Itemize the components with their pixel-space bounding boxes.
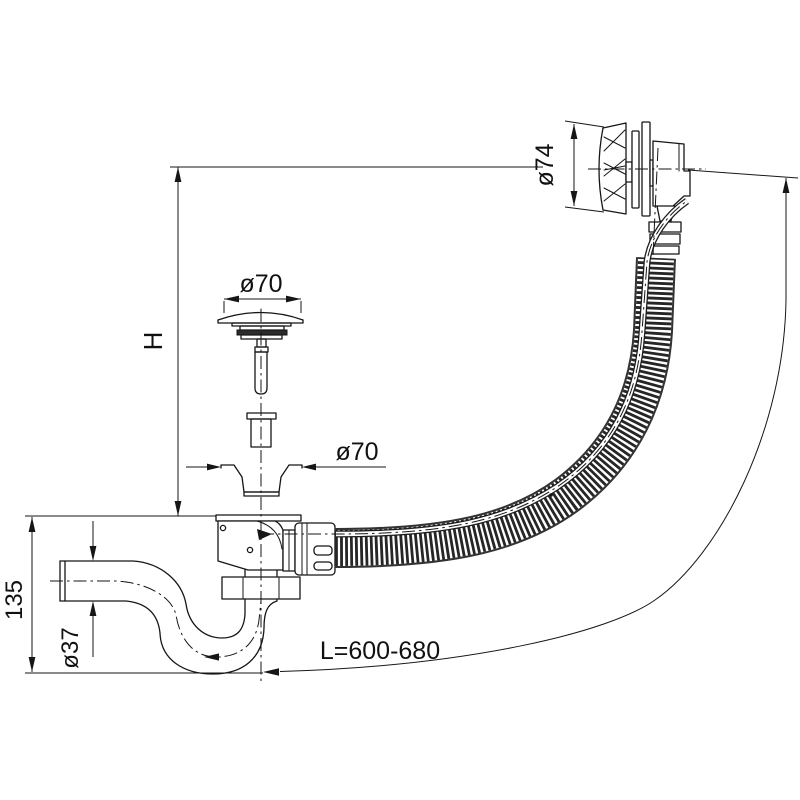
technical-drawing-page: ø70 ø70 ø74 H 135 ø37 L=600-680 bbox=[0, 0, 800, 800]
dim-dia74 bbox=[565, 121, 604, 212]
bath-waste-overflow-drawing: ø70 ø70 ø74 H 135 ø37 L=600-680 bbox=[0, 0, 800, 800]
cable-centerline bbox=[261, 201, 687, 534]
rubber-seal bbox=[237, 330, 287, 335]
label-flange-diameter: ø70 bbox=[335, 438, 378, 466]
locking-nut bbox=[295, 523, 335, 575]
knob-hub bbox=[626, 162, 632, 182]
label-plug-diameter: ø70 bbox=[239, 270, 282, 298]
corrugated-hose bbox=[335, 201, 687, 548]
neck-ring bbox=[651, 246, 679, 254]
dim-hose-length bbox=[263, 170, 798, 676]
dim-dia70-plug bbox=[224, 296, 301, 313]
drain-elbow bbox=[216, 515, 335, 599]
label-pipe-diameter: ø37 bbox=[57, 627, 84, 668]
label-height: H bbox=[138, 332, 168, 351]
trap-inner-wall bbox=[60, 561, 245, 638]
label-hose-length: L=600-680 bbox=[320, 637, 440, 665]
overflow-assembly bbox=[599, 122, 690, 254]
elbow-top-plate bbox=[216, 515, 301, 521]
flow-arrow bbox=[204, 653, 219, 660]
elbow-body bbox=[218, 521, 283, 570]
label-trap-height: 135 bbox=[1, 580, 28, 620]
label-overflow-diameter: ø74 bbox=[531, 143, 559, 186]
centerlines bbox=[50, 148, 706, 685]
dim-dia37 bbox=[90, 521, 97, 657]
seal-washer bbox=[240, 326, 284, 330]
hose-corrugation bbox=[335, 258, 656, 548]
cable-line bbox=[336, 201, 687, 534]
